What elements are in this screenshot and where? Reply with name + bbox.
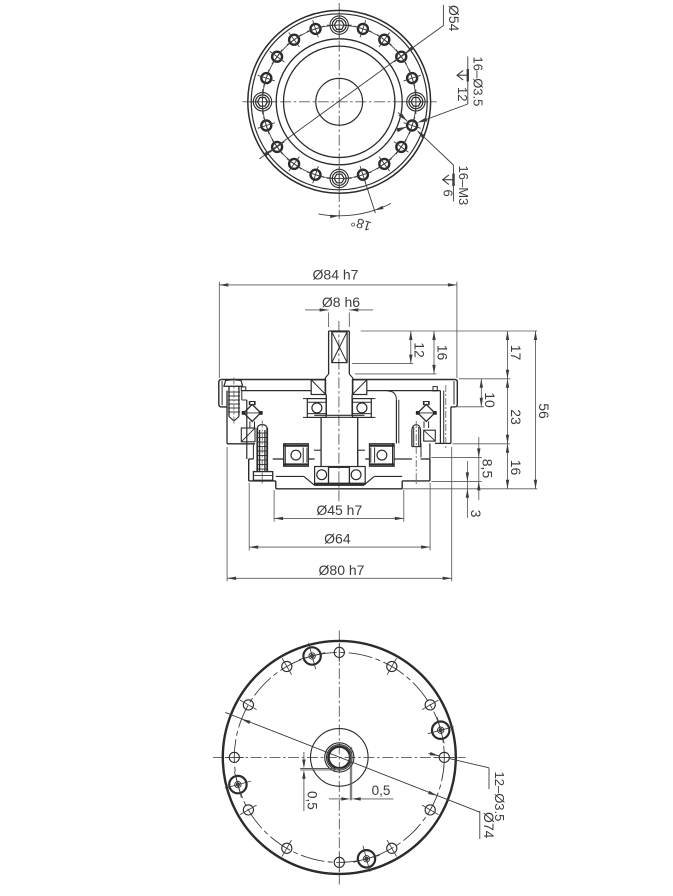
svg-text:12: 12 [412,342,428,358]
svg-text:8,5: 8,5 [480,459,496,479]
svg-text:3: 3 [468,510,484,518]
svg-text:16: 16 [435,345,451,361]
svg-text:56: 56 [536,403,552,419]
svg-text:17: 17 [508,345,524,361]
svg-text:12–Ø3.5: 12–Ø3.5 [492,772,507,822]
svg-text:Ø80 h7: Ø80 h7 [319,562,365,578]
svg-text:0,5: 0,5 [305,791,320,810]
svg-text:Ø45 h7: Ø45 h7 [316,502,362,518]
svg-text:16–Ø3.5: 16–Ø3.5 [471,57,486,107]
svg-text:10: 10 [482,392,498,408]
svg-text:0,5: 0,5 [372,783,391,798]
svg-text:Ø8 h6: Ø8 h6 [322,294,360,310]
svg-text:Ø54: Ø54 [446,5,462,32]
svg-text:18°: 18° [349,214,373,234]
svg-text:16–M3: 16–M3 [456,166,471,206]
svg-text:16: 16 [508,460,524,476]
svg-text:23: 23 [508,409,524,425]
svg-text:12: 12 [455,87,470,101]
svg-text:Ø64: Ø64 [324,531,351,547]
svg-text:6: 6 [441,190,456,197]
svg-text:Ø84 h7: Ø84 h7 [313,267,359,283]
